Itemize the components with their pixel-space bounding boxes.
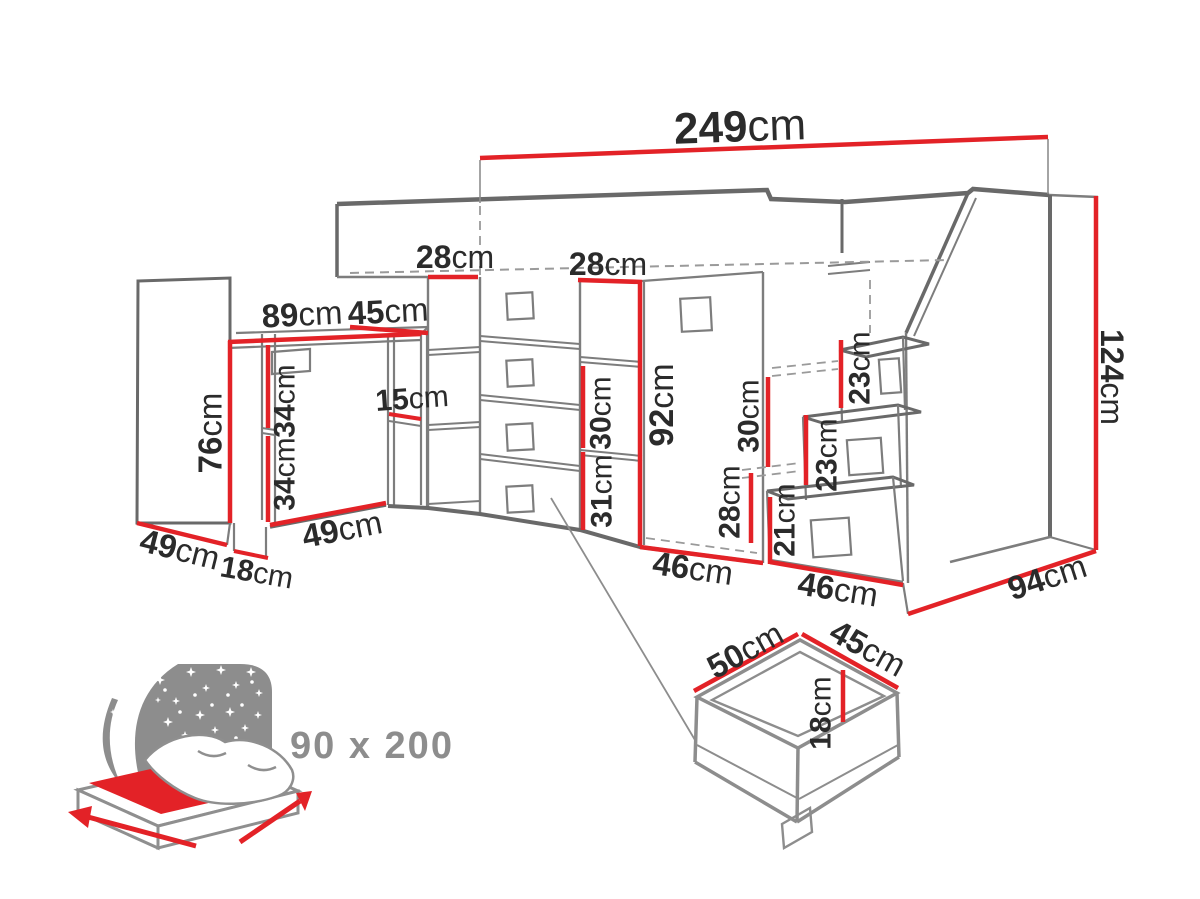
dim-label-drawer-depth-50: 50cm <box>701 614 790 685</box>
dim-label-shelf-opening-30: 30cm <box>585 376 618 449</box>
star-dot-icon <box>116 723 120 727</box>
dim-label-desk-depth-49: 49cm <box>299 503 385 555</box>
dim-label-total-width-249: 249cm <box>673 100 807 154</box>
dim-label-desk-foot-18: 18cm <box>218 550 296 595</box>
star-dot-icon <box>193 693 197 697</box>
dim-label-drawer-height-18: 18cm <box>805 676 838 749</box>
star-dot-icon <box>240 703 244 707</box>
dim-label-desk-shelf-15: 15cm <box>374 380 449 418</box>
dim-label-step-height-21: 21cm <box>769 483 802 556</box>
star-dot-icon <box>250 680 254 684</box>
star-dot-icon <box>178 710 182 714</box>
dim-label-shelf-width-28-right: 28cm <box>569 246 647 282</box>
dim-label-stairs-opening-30: 30cm <box>733 379 766 452</box>
dim-label-desk-return-45: 45cm <box>347 290 430 331</box>
dim-label-desk-height-76: 76cm <box>192 393 229 474</box>
dim-label-shelf-width-28-left: 28cm <box>416 239 494 275</box>
dimension-labels: 249cm28cm28cm89cm45cm15cm76cm34cm34cm49c… <box>136 100 1129 750</box>
dim-label-under-bed-height-92: 92cm <box>643 363 681 446</box>
star-dot-icon <box>226 693 230 697</box>
dim-label-depth-94: 94cm <box>1003 547 1091 607</box>
dim-label-step-height-23-mid: 23cm <box>811 418 844 491</box>
dim-label-shelf-opening-31: 31cm <box>586 454 619 527</box>
dim-label-desk-width-89: 89cm <box>261 293 344 334</box>
dim-label-stairs-width-46: 46cm <box>795 564 881 613</box>
dim-label-cabinet-width-46: 46cm <box>650 544 735 592</box>
dim-label-step-height-23-top: 23cm <box>844 331 877 404</box>
drawer-chest <box>480 277 580 530</box>
furniture-dimension-diagram: 90 x 200 249cm28cm28cm89cm45cm15cm76cm34… <box>0 0 1200 899</box>
dim-label-wardrobe-depth-49: 49cm <box>136 521 223 576</box>
star-dot-icon <box>163 688 167 692</box>
dim-label-total-height-124: 124cm <box>1094 329 1130 425</box>
star-icon <box>113 741 119 747</box>
star-icon <box>116 767 122 773</box>
diagram-canvas: 90 x 200 249cm28cm28cm89cm45cm15cm76cm34… <box>0 0 1200 899</box>
bed-size-text: 90 x 200 <box>290 725 454 767</box>
bed-size-icon: 90 x 200 <box>68 664 454 848</box>
dim-label-stairs-opening-28: 28cm <box>714 465 747 538</box>
dim-label-under-desk-34-lower: 34cm <box>269 437 302 510</box>
star-dot-icon <box>210 703 214 707</box>
leader-line <box>551 498 695 740</box>
dim-label-under-desk-34-upper: 34cm <box>269 364 302 437</box>
